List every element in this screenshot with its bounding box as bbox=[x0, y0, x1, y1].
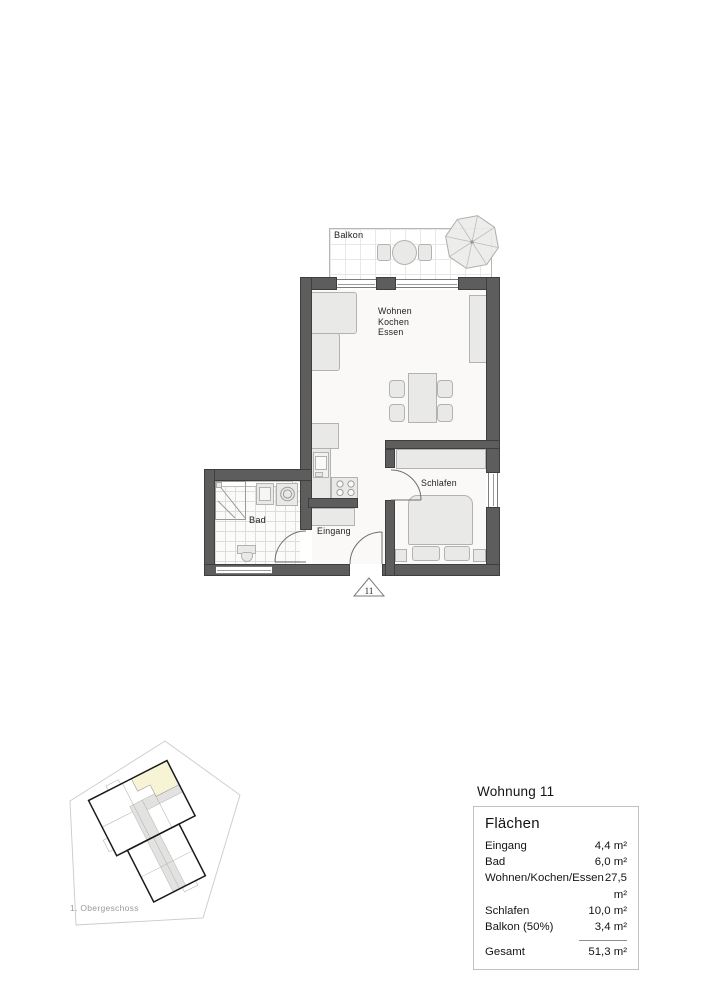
wall-segment bbox=[204, 469, 312, 481]
area-row: Eingang 4,4 m² bbox=[485, 838, 627, 854]
balcony-label: Balkon bbox=[334, 230, 363, 241]
wall-segment bbox=[385, 449, 395, 468]
unit-title: Wohnung 11 bbox=[477, 784, 554, 799]
area-row-label: Bad bbox=[485, 854, 505, 870]
balcony-chair bbox=[377, 244, 391, 261]
keyplan-floor-label: 1. Obergeschoss bbox=[70, 903, 139, 913]
unit-number-marker: 11 bbox=[354, 578, 384, 596]
window bbox=[216, 566, 272, 574]
floorplan-sheet: Balkon bbox=[0, 0, 707, 1000]
window bbox=[488, 473, 498, 507]
area-row: Wohnen/Kochen/Essen 27,5 m² bbox=[485, 870, 627, 902]
wall-segment bbox=[385, 440, 500, 449]
area-row-value: 6,0 m² bbox=[595, 854, 627, 870]
bed bbox=[408, 495, 473, 545]
kitchen-tall-unit bbox=[310, 423, 339, 449]
area-row-label: Wohnen/Kochen/Essen bbox=[485, 870, 604, 902]
living-room-label: Wohnen Kochen Essen bbox=[378, 306, 412, 338]
wall-segment bbox=[300, 277, 312, 530]
area-table: Flächen Eingang 4,4 m² Bad 6,0 m² Wohnen… bbox=[473, 806, 639, 970]
nightstand bbox=[473, 549, 486, 562]
window bbox=[337, 279, 376, 288]
sofa bbox=[310, 333, 340, 371]
bedroom-wardrobe bbox=[396, 449, 486, 469]
bed-pillow bbox=[412, 546, 440, 561]
living-label-line: Wohnen bbox=[378, 306, 412, 317]
bathroom-label: Bad bbox=[249, 515, 266, 526]
stove bbox=[331, 477, 358, 499]
window bbox=[396, 279, 458, 288]
area-table-header: Flächen bbox=[485, 815, 627, 832]
area-total-value: 51,3 m² bbox=[588, 944, 627, 960]
sofa-chaise bbox=[310, 292, 357, 334]
dining-chair bbox=[389, 404, 405, 422]
living-label-line: Kochen bbox=[378, 317, 412, 328]
bedroom-label: Schlafen bbox=[421, 478, 457, 489]
entry-closet bbox=[311, 508, 355, 526]
keyplan bbox=[58, 731, 246, 931]
area-row-label: Schlafen bbox=[485, 903, 529, 919]
area-row-value: 27,5 m² bbox=[604, 870, 627, 902]
unit-number-text: 11 bbox=[365, 586, 374, 596]
living-label-line: Essen bbox=[378, 327, 412, 338]
dining-chair bbox=[437, 380, 453, 398]
area-row-label: Eingang bbox=[485, 838, 527, 854]
balcony-chair bbox=[418, 244, 432, 261]
dining-chair bbox=[437, 404, 453, 422]
wall-segment bbox=[204, 469, 215, 576]
area-row-label: Balkon (50%) bbox=[485, 919, 553, 935]
area-row-value: 10,0 m² bbox=[588, 903, 627, 919]
washing-machine bbox=[276, 483, 298, 506]
bed-pillow bbox=[444, 546, 470, 561]
kitchen-faucet bbox=[315, 472, 323, 477]
area-row-value: 3,4 m² bbox=[595, 919, 627, 935]
wall-segment bbox=[385, 500, 395, 576]
balcony-round-table bbox=[392, 240, 417, 265]
dining-table bbox=[408, 373, 437, 423]
wall-segment bbox=[382, 564, 500, 576]
nightstand bbox=[395, 549, 407, 562]
wall-segment bbox=[308, 498, 358, 508]
shower bbox=[215, 481, 246, 520]
area-total-label: Gesamt bbox=[485, 944, 525, 960]
area-row: Bad 6,0 m² bbox=[485, 854, 627, 870]
bathroom-sink-basin bbox=[259, 487, 271, 501]
area-row: Balkon (50%) 3,4 m² bbox=[485, 919, 627, 935]
area-row: Schlafen 10,0 m² bbox=[485, 903, 627, 919]
area-total-row: Gesamt 51,3 m² bbox=[485, 944, 627, 960]
area-row-value: 4,4 m² bbox=[595, 838, 627, 854]
entry-label: Eingang bbox=[317, 526, 351, 537]
dining-chair bbox=[389, 380, 405, 398]
kitchen-sink-basin bbox=[315, 456, 327, 470]
total-divider bbox=[579, 940, 627, 941]
wall-segment bbox=[376, 277, 396, 290]
